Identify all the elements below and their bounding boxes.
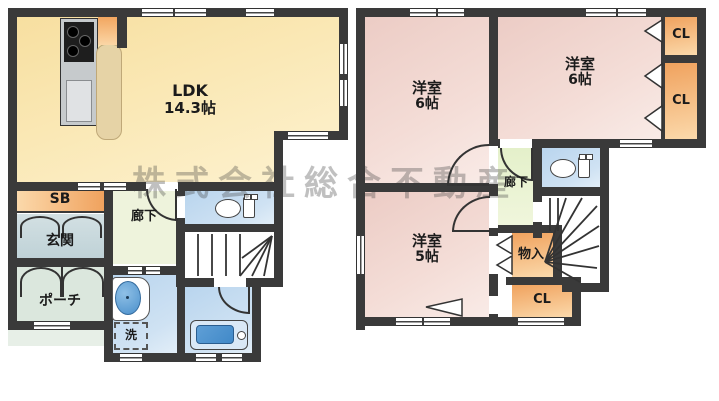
room-size: 6帖: [395, 97, 459, 113]
laundry-label: 洗: [122, 329, 140, 342]
folding-door-triangle: [645, 20, 662, 42]
folding-door-triangle: [426, 299, 462, 316]
room-name: 洋室: [548, 56, 612, 73]
closet-top-label: CL: [664, 28, 698, 43]
storage-label: 物入: [507, 248, 555, 263]
company-watermark: 株式会社総合不動産: [132, 156, 519, 205]
room-size: 5帖: [395, 250, 459, 266]
porch-label: ポーチ: [24, 294, 96, 310]
closet-mid-label: CL: [664, 94, 698, 109]
ldk-name: LDK: [130, 82, 250, 100]
stairs-1f: [198, 234, 272, 276]
ldk-label: LDK 14.3帖: [130, 82, 250, 117]
western-6-left-label: 洋室 6帖: [395, 80, 459, 112]
folding-door-triangle: [645, 64, 662, 88]
hallway-1f-label: 廊下: [116, 210, 172, 225]
folding-door-triangle: [645, 106, 662, 131]
western-6-right-label: 洋室 6帖: [548, 56, 612, 88]
room-name: 洋室: [395, 233, 459, 250]
entrance-label: 玄関: [30, 234, 90, 250]
closet-bottom-label: CL: [522, 293, 562, 308]
floorplan-image: LDK 14.3帖 SB 玄関 ポーチ 廊下 洗 洋室 6帖 洋室 6帖 洋室 …: [0, 0, 719, 401]
room-name: 洋室: [395, 80, 459, 97]
western-5-label: 洋室 5帖: [395, 233, 459, 265]
shoe-box-label: SB: [30, 192, 90, 208]
stairs-2f: [545, 198, 599, 282]
room-size: 6帖: [548, 73, 612, 89]
ldk-size: 14.3帖: [130, 100, 250, 117]
